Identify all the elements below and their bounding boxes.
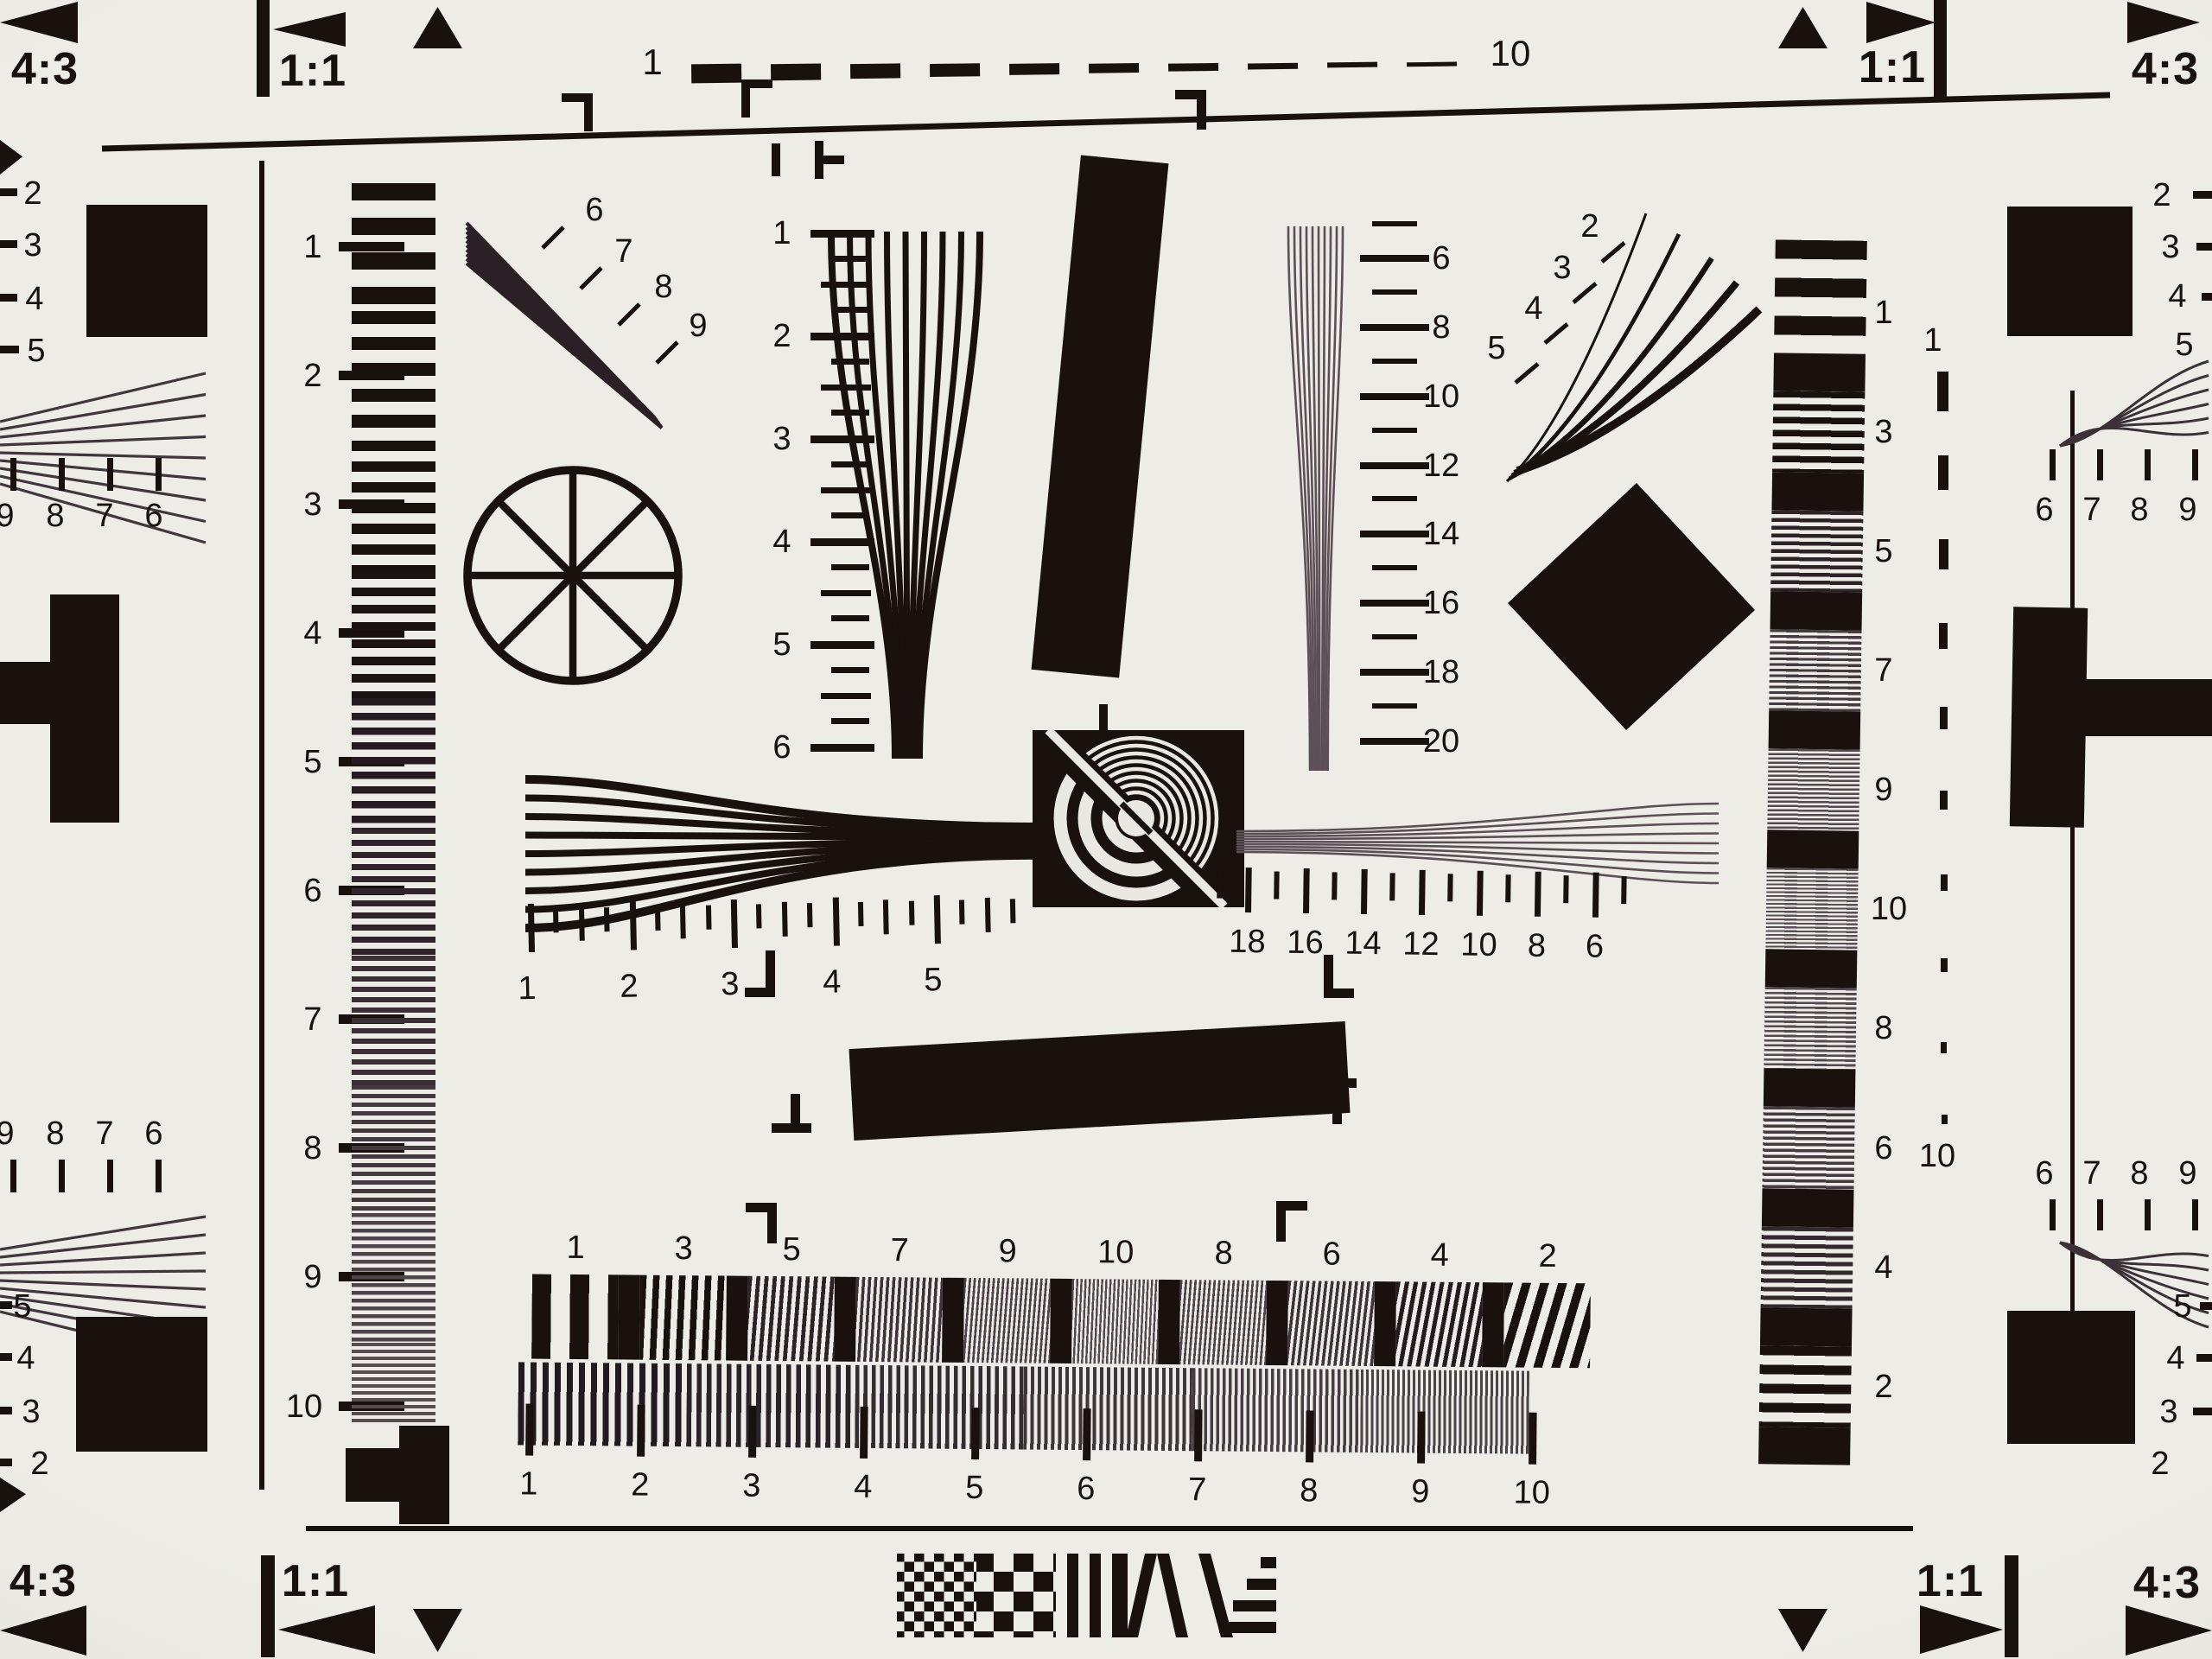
wedge-scale-minor-tick: [831, 667, 869, 673]
left-sweep-band: [352, 441, 435, 570]
bottom-ruler-label: 1: [519, 1467, 537, 1500]
ruler-major-tick: [1477, 871, 1484, 916]
left-ruler-label: 10: [286, 1390, 322, 1423]
ruler-major-tick: [1194, 1409, 1203, 1461]
right-column-label: 2: [1874, 1370, 1892, 1403]
wedge-scale-minor-tick: [1372, 496, 1417, 501]
right-column-label: 4: [1874, 1251, 1892, 1284]
ruler-label: 4: [823, 965, 842, 998]
dash: [1942, 1115, 1948, 1124]
wedge-scale-tick: [1360, 669, 1429, 676]
sweep-band: [1774, 239, 1867, 353]
left-ruler-label: 5: [303, 746, 321, 779]
ruler-major-tick: [630, 901, 637, 950]
sweep-segment: [963, 1278, 1051, 1363]
bottom-tilted-bar: [849, 1021, 1350, 1141]
alignment-bar: [261, 1555, 275, 1657]
ruler-major-tick: [1419, 870, 1426, 915]
wedge-scale-tick: [810, 333, 874, 340]
left-ruler-label: 8: [303, 1132, 321, 1165]
diagonal-wedge-label: 8: [654, 270, 672, 303]
ruler-minor-tick: [883, 899, 889, 934]
sweep-separator: [726, 1276, 748, 1361]
edge-tick-number: 7: [2082, 1157, 2101, 1190]
cut-dash: [0, 1301, 12, 1309]
dash: [1941, 958, 1948, 972]
wedge-scale-tick: [1360, 255, 1429, 262]
wedge-scale-tick: [1360, 393, 1429, 400]
edge-number: 5: [2173, 1290, 2191, 1323]
corner-triangle-right-icon: [1920, 1605, 2003, 1654]
edge-tick-number: 8: [46, 1117, 64, 1150]
left-sweep-band: [352, 828, 435, 956]
wedge-scale-minor-tick: [831, 256, 869, 262]
aspect-ratio-label: 4:3: [2132, 47, 2199, 92]
right-column-label: 6: [1874, 1132, 1892, 1165]
wedge-scale-tick: [810, 435, 874, 443]
ruler-label: 5: [924, 963, 943, 996]
sweep-separator: [1158, 1280, 1180, 1364]
cut-dash: [0, 1407, 12, 1414]
alignment-triangle-up-icon: [413, 7, 462, 48]
cut-dash: [2196, 243, 2212, 251]
sweep-separator: [1773, 353, 1866, 391]
black-square: [2007, 207, 2133, 336]
wedge-scale-minor-tick: [831, 512, 869, 518]
sweep-segment: [1503, 1282, 1591, 1368]
ruler-minor-tick: [1332, 872, 1337, 899]
sweep-separator: [1266, 1281, 1288, 1365]
cut-dash: [2193, 1408, 2212, 1415]
sweep-segment: [518, 1362, 687, 1446]
ruler-major-tick: [833, 898, 840, 946]
wedge-scale-tick: [1360, 738, 1429, 745]
wedge-scale-tick: [810, 538, 874, 546]
sweep-band: [1765, 868, 1858, 950]
fan-scale-label: 4: [1524, 292, 1542, 325]
ruler-label: 8: [1528, 930, 1547, 963]
alignment-bar: [2005, 1555, 2018, 1657]
sweep-band: [1761, 1226, 1853, 1308]
ruler-minor-tick: [1389, 873, 1395, 900]
ruler-major-tick: [1245, 868, 1252, 912]
sweep-separator: [618, 1274, 640, 1359]
sweep-separator: [834, 1277, 856, 1362]
dash: [1941, 874, 1948, 891]
ruler-major-tick: [528, 904, 535, 952]
ruler-major-tick: [1306, 1410, 1314, 1462]
bottom-ruler-label: 2: [631, 1469, 649, 1502]
edge-triangle-icon: [0, 140, 22, 175]
left-sweep-band: [352, 1343, 435, 1426]
left-ruler-label: 9: [303, 1261, 321, 1294]
right-column-label: 8: [1874, 1012, 1892, 1045]
edge-number: 2: [2152, 179, 2171, 212]
edge-number: 3: [2159, 1395, 2177, 1428]
bottom-ruler-label: 8: [1300, 1474, 1318, 1507]
ruler-minor-tick: [756, 904, 762, 928]
ruler-minor-tick: [909, 901, 915, 925]
dash: [1938, 455, 1948, 490]
ruler-major-tick: [748, 1406, 757, 1458]
wedge-scale-tick: [810, 641, 874, 649]
left-ruler-label: 1: [303, 231, 321, 264]
bottom-ruler-label: 6: [1077, 1472, 1095, 1505]
dash: [1327, 62, 1377, 68]
edge-tick: [10, 458, 16, 491]
edge-tick: [156, 458, 162, 491]
edge-tick: [10, 1160, 16, 1192]
sweep-top-label: 7: [890, 1234, 908, 1267]
wedge-scale-tick: [810, 744, 874, 752]
edge-tick: [2097, 1199, 2103, 1230]
dash: [691, 64, 741, 84]
corner-triangle-left-icon: [0, 2, 78, 43]
right-column-label: 9: [1874, 773, 1892, 806]
dash: [1937, 372, 1948, 411]
ruler-major-tick: [1592, 873, 1599, 918]
edge-tick-number: 6: [144, 1117, 162, 1150]
alignment-triangle-up-icon: [1778, 7, 1827, 48]
alignment-bar: [1934, 0, 1947, 97]
wedge-scale-label: 3: [772, 423, 791, 455]
ruler-minor-tick: [985, 898, 991, 932]
sweep-separator: [1758, 1427, 1851, 1465]
aspect-ratio-label: 4:3: [2133, 1560, 2201, 1605]
ruler-minor-tick: [1447, 874, 1452, 901]
dash-scale: [687, 39, 1456, 87]
edge-tick: [107, 458, 113, 491]
sweep-segment: [747, 1276, 835, 1362]
alignment-triangle-down-icon: [1778, 1609, 1827, 1652]
cut-dash: [2193, 191, 2212, 199]
edge-tick-number: 9: [2178, 1157, 2196, 1190]
fan-scale-label: 5: [1487, 332, 1505, 365]
fiducial-mark: [772, 143, 780, 176]
sweep-segment: [1287, 1281, 1375, 1366]
fan-scale-label: 3: [1553, 251, 1571, 284]
fiducial-mark: [823, 156, 844, 164]
wedge-scale-label: 6: [1432, 242, 1450, 275]
dash-scale-end: 10: [1491, 35, 1531, 72]
cut-dash: [0, 188, 17, 196]
sweep-segment: [1192, 1368, 1361, 1452]
dash: [1941, 1042, 1947, 1053]
edge-number: 4: [16, 1342, 35, 1375]
wedge-scale-minor-tick: [1372, 634, 1417, 639]
ruler-label: 2: [620, 969, 639, 1002]
edge-number: 3: [23, 229, 41, 262]
ruler-label: 10: [1460, 928, 1497, 962]
fiducial-mark: [1324, 988, 1354, 998]
left-ruler-label: 2: [303, 359, 321, 392]
ruler-major-tick: [1529, 1413, 1537, 1465]
sweep-segment: [855, 1277, 943, 1363]
edge-number: 4: [2166, 1342, 2184, 1375]
frame-left-line: [259, 161, 264, 1490]
diamond-square: [1502, 475, 1761, 734]
wedge-scale-minor-tick: [831, 461, 869, 467]
black-square: [86, 205, 207, 337]
edge-tick: [107, 1160, 113, 1192]
sweep-top-label: 2: [1538, 1240, 1556, 1273]
dash-scale-start: 1: [642, 44, 662, 80]
bottom-ruler-label: 7: [1188, 1473, 1206, 1506]
edge-tick: [2145, 1199, 2151, 1230]
dash: [1248, 63, 1298, 70]
sweep-band: [1769, 629, 1861, 711]
center-left-ruler: 1 2 3 4 5: [500, 884, 1056, 1012]
wedge-scale-minor-tick: [831, 307, 869, 313]
edge-tick-number: 9: [2178, 493, 2196, 526]
ruler-label: 3: [721, 968, 740, 1001]
edge-tick-number: 6: [144, 499, 162, 532]
left-sweep-band: [352, 1213, 435, 1343]
dash: [1407, 62, 1457, 67]
sweep-band: [1759, 1345, 1852, 1427]
edge-number: 2: [2151, 1447, 2169, 1480]
bottom-ruler-label: 9: [1411, 1475, 1429, 1508]
ruler-major-tick: [860, 1407, 868, 1459]
wedge-scale-minor-tick: [1372, 428, 1417, 433]
wedge-scale-tick: [1360, 324, 1429, 331]
left-ruler-label: 6: [303, 874, 321, 907]
ruler-major-tick: [971, 1408, 980, 1459]
edge-number: 2: [23, 177, 41, 210]
sweep-band: [1770, 510, 1863, 592]
corner-triangle-left-icon: [0, 1605, 86, 1656]
ruler-major-tick: [934, 895, 941, 944]
sweep-top-label: 6: [1322, 1238, 1340, 1271]
fiducial-mark: [772, 1123, 811, 1133]
left-sweep-band: [352, 570, 435, 698]
edge-tick: [2145, 449, 2151, 480]
dash: [771, 64, 821, 81]
wedge-scale-minor-tick: [831, 410, 869, 416]
bottom-ruler-label: 10: [1513, 1476, 1550, 1509]
sweep-separator: [1769, 710, 1861, 749]
aspect-ratio-label: 4:3: [10, 1559, 77, 1604]
corner-triangle-left-icon: [273, 12, 346, 47]
edge-tick: [2192, 449, 2198, 480]
sweep-segment: [1179, 1280, 1267, 1365]
ruler-major-tick: [1303, 868, 1310, 913]
edge-number: 3: [22, 1395, 40, 1428]
alignment-triangle-down-icon: [413, 1609, 462, 1652]
ruler-major-tick: [731, 899, 738, 948]
fan-scale-label: 2: [1580, 210, 1599, 243]
ruler-label: 6: [1586, 931, 1605, 963]
frame-top-line: [95, 86, 2117, 156]
ruler-minor-tick: [706, 906, 712, 930]
ruler-minor-tick: [1010, 899, 1016, 923]
wedge-scale-label: 8: [1432, 311, 1450, 344]
wedge-scale-minor-tick: [821, 385, 871, 391]
diagonal-wedge-label: 6: [585, 194, 603, 226]
sweep-top-label: 4: [1430, 1239, 1448, 1272]
wedge-scale-minor-tick: [821, 590, 871, 596]
sweep-separator: [1771, 472, 1864, 511]
dash: [1940, 791, 1948, 810]
dash: [1168, 63, 1218, 72]
sweep-band: [1772, 391, 1865, 473]
right-column-label: 5: [1874, 535, 1892, 568]
sweep-top-label: 8: [1214, 1236, 1232, 1269]
ruler-minor-tick: [1621, 876, 1626, 904]
right-sweep-column: [1758, 232, 1867, 1465]
fiducial-mark: [741, 79, 750, 118]
coarse-checkerboard: [976, 1554, 1056, 1637]
ruler-minor-tick: [579, 906, 585, 941]
wedge-scale-minor-tick: [821, 487, 871, 493]
aspect-ratio-label: 1:1: [1916, 1559, 1984, 1604]
cut-dash: [2196, 1354, 2212, 1362]
sweep-segment: [686, 1363, 855, 1448]
wedge-scale-tick: [1360, 600, 1429, 607]
cut-dash: [2200, 1302, 2212, 1310]
right-column-label: 3: [1874, 416, 1892, 448]
sweep-separator: [1765, 949, 1858, 988]
ruler-major-tick: [1417, 1411, 1426, 1463]
edge-tick-number: 7: [2082, 493, 2101, 526]
ruler-label: 18: [1229, 925, 1266, 959]
ruler-minor-tick: [1505, 874, 1510, 902]
edge-number: 3: [2161, 231, 2179, 264]
wedge-scale-minor-tick: [1372, 221, 1417, 226]
sweep-segment: [1360, 1370, 1529, 1454]
dash: [850, 63, 900, 79]
sweep-separator: [1760, 1307, 1853, 1346]
fiducial-mark: [1197, 90, 1206, 130]
edge-t-block-stem: [2010, 607, 2088, 827]
dash-scale-start: 1: [1923, 324, 1942, 357]
wedge-scale-minor-tick: [831, 564, 869, 570]
edge-tick: [59, 458, 65, 491]
frame-bottom-line: [306, 1526, 1913, 1531]
wedge-scale-label: 6: [772, 731, 791, 764]
dash: [1940, 707, 1948, 729]
fiducial-mark: [584, 93, 593, 131]
cut-dash: [0, 346, 19, 353]
sweep-segment: [639, 1275, 727, 1361]
cut-dash: [0, 1459, 12, 1466]
wedge-scale-label: 1: [772, 217, 791, 250]
diagonal-wedge-label: 9: [689, 309, 707, 342]
edge-tick-number: 9: [0, 1117, 15, 1150]
bottom-ruler-label: 4: [854, 1471, 872, 1503]
dash-scale-end: 10: [1919, 1140, 1955, 1173]
sweep-separator: [1050, 1279, 1072, 1363]
ruler-major-tick: [637, 1405, 645, 1457]
alignment-bar: [257, 0, 270, 97]
sweep-separator: [1770, 591, 1863, 630]
checkerboard-logo: [894, 1552, 1283, 1643]
fiducial-mark: [1332, 1088, 1342, 1124]
left-sweep-band: [352, 311, 435, 441]
sweep-top-label: 5: [782, 1233, 800, 1266]
corner-triangle-right-icon: [2127, 2, 2200, 43]
ruler-minor-tick: [959, 899, 965, 924]
dash: [1939, 539, 1948, 569]
ruler-minor-tick: [604, 907, 610, 931]
edge-tick-number: 9: [0, 499, 15, 532]
wedge-scale-minor-tick: [831, 359, 869, 365]
corner-triangle-right-icon: [2126, 1605, 2212, 1656]
ruler-label: 1: [518, 972, 537, 1005]
edge-tick-number: 6: [2035, 493, 2053, 526]
ruler-minor-tick: [858, 902, 864, 926]
wedge-scale-tick: [810, 230, 874, 238]
ruler-minor-tick: [680, 904, 686, 938]
edge-triangle-icon: [0, 1478, 26, 1512]
left-sweep-end-block: [399, 1426, 449, 1524]
cut-dash: [0, 294, 17, 302]
right-vertical-wedge: [1281, 218, 1359, 775]
edge-t-block-arm: [2084, 679, 2212, 736]
ruler-major-tick: [1361, 869, 1368, 914]
wedge-scale-minor-tick: [831, 615, 869, 621]
bottom-ruler-label: 5: [965, 1471, 983, 1504]
center-tilted-bar: [1032, 155, 1169, 677]
left-ruler-label: 7: [303, 1003, 321, 1036]
dash: [1939, 623, 1948, 649]
sweep-separator: [1374, 1281, 1396, 1366]
sweep-band: [1764, 987, 1856, 1069]
corner-triangle-right-icon: [1866, 2, 1935, 43]
ruler-label: 16: [1287, 926, 1324, 960]
black-square: [2007, 1311, 2135, 1444]
edge-tick-number: 6: [2035, 1157, 2053, 1190]
wedge-scale-tick: [1360, 531, 1429, 537]
ruler-minor-tick: [1217, 871, 1222, 899]
left-sweep-band: [352, 1085, 435, 1213]
center-right-ruler: 18 16 14 12 10 8 6: [1205, 856, 1656, 970]
sweep-top-label: 1: [566, 1231, 584, 1264]
sweep-segment: [531, 1274, 619, 1360]
right-column-label: 7: [1874, 654, 1892, 687]
wedge-scale-label: 4: [772, 525, 791, 558]
fiducial-mark: [815, 141, 823, 179]
wedge-scale-minor-tick: [1372, 359, 1417, 364]
sweep-band: [1763, 1106, 1855, 1189]
cut-dash: [0, 240, 17, 248]
bottom-sweep: 1 3 5 7 9 10 8 6 4 2: [509, 1226, 1635, 1512]
wedge-scale-label: 2: [772, 320, 791, 353]
sweep-top-label: 3: [674, 1232, 692, 1265]
edge-tick: [2097, 449, 2103, 480]
left-sweep-band: [352, 698, 435, 828]
iso-resolution-test-chart: 4:3 1:1 1:1 4:3 4:3 1:1 1:1 4:3 1 10: [0, 0, 2212, 1659]
sweep-separator: [1482, 1282, 1504, 1367]
black-square: [76, 1317, 207, 1452]
sweep-separator: [1764, 1068, 1856, 1107]
fine-checkerboard: [897, 1554, 976, 1637]
wedge-scale-minor-tick: [821, 693, 871, 699]
aspect-ratio-label: 1:1: [1859, 45, 1926, 90]
sweep-segment: [1395, 1281, 1483, 1367]
dash: [1009, 63, 1059, 75]
ruler-label: 12: [1402, 928, 1440, 962]
edge-number: 4: [25, 283, 43, 315]
ruler-label: 14: [1344, 927, 1382, 961]
edge-tick: [156, 1160, 162, 1192]
fiducial-mark: [1317, 1078, 1357, 1088]
aspect-ratio-label: 1:1: [282, 1559, 349, 1604]
edge-tick-number: 8: [2130, 493, 2148, 526]
sweep-separator: [1767, 829, 1859, 868]
sweep-segment: [1071, 1279, 1159, 1364]
ruler-minor-tick: [807, 903, 813, 927]
